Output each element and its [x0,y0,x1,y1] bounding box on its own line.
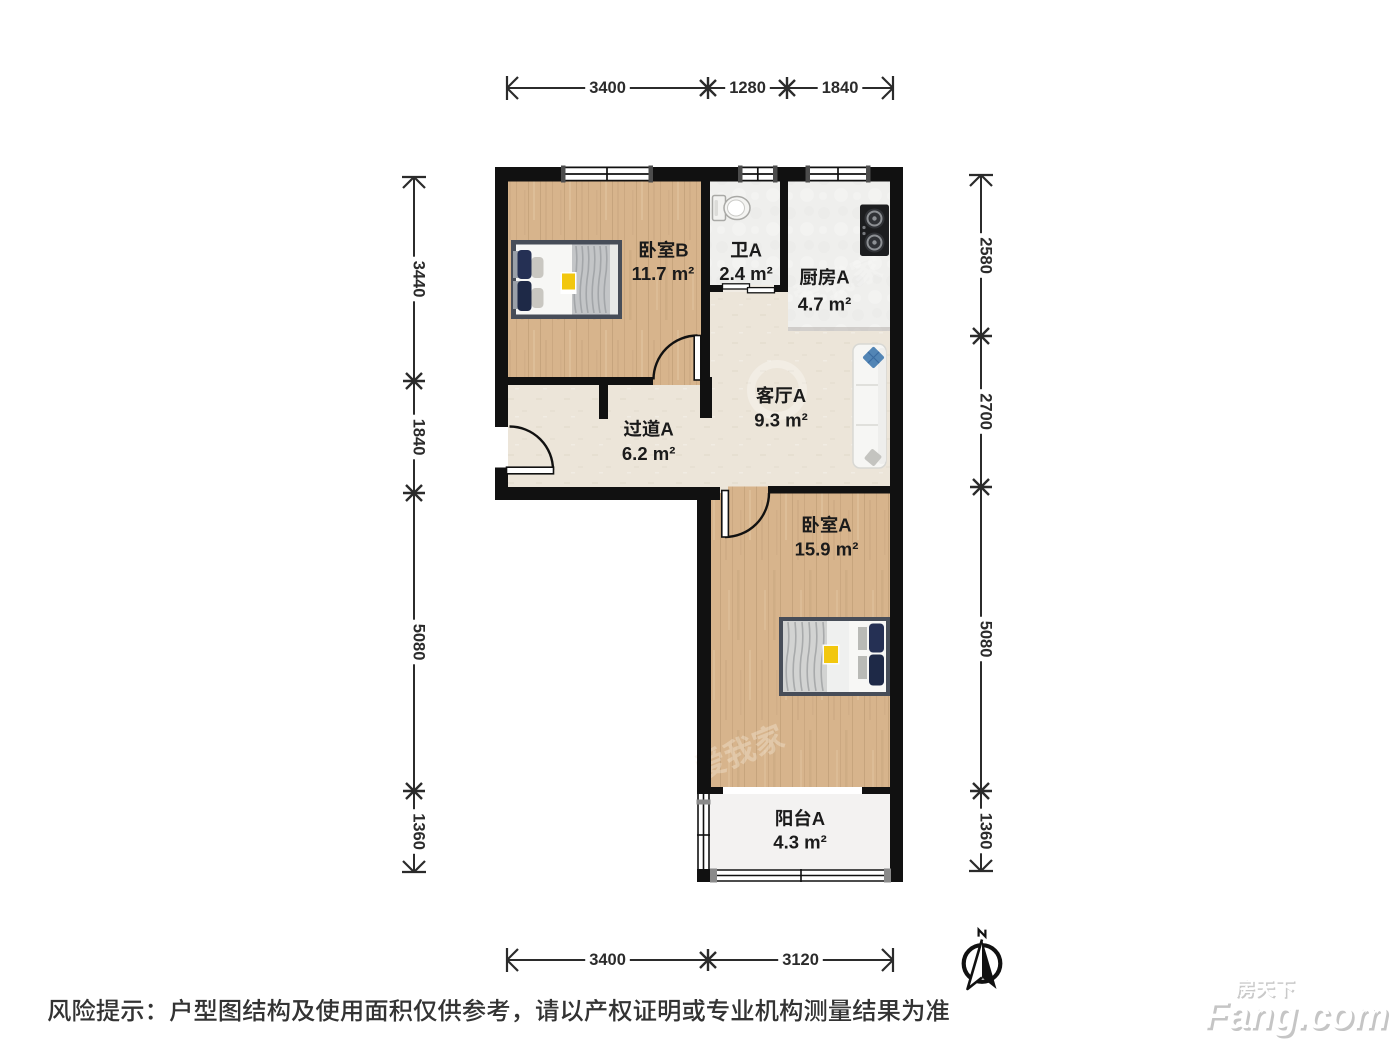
svg-text:11.7 m²: 11.7 m² [632,263,695,284]
svg-text:2580: 2580 [977,237,995,274]
svg-text:A: A [660,418,673,439]
svg-text:1280: 1280 [729,79,766,97]
svg-text:3440: 3440 [410,261,428,298]
svg-text:4.3 m²: 4.3 m² [773,832,826,853]
svg-text:5080: 5080 [977,621,995,658]
svg-text:15.9 m²: 15.9 m² [795,539,859,560]
svg-text:A: A [836,267,849,288]
svg-text:2700: 2700 [977,393,995,430]
svg-text:9.3 m²: 9.3 m² [754,410,807,431]
svg-text:A: A [793,385,806,406]
svg-text:1360: 1360 [977,813,995,850]
svg-text:3400: 3400 [589,951,626,969]
svg-text:2.4 m²: 2.4 m² [719,263,772,284]
svg-text:5080: 5080 [410,624,428,661]
svg-text:1840: 1840 [410,419,428,456]
svg-text:3400: 3400 [589,79,626,97]
svg-text:1840: 1840 [822,79,859,97]
svg-text:A: A [838,515,851,536]
svg-text:4.7 m²: 4.7 m² [798,294,851,315]
svg-text:6.2 m²: 6.2 m² [622,443,675,464]
svg-text:B: B [675,240,688,261]
svg-text:3120: 3120 [782,951,819,969]
svg-text:A: A [812,808,825,829]
svg-text:A: A [749,239,762,260]
svg-text:1360: 1360 [410,813,428,850]
svg-text:Fang.com: Fang.com [1204,994,1388,1037]
